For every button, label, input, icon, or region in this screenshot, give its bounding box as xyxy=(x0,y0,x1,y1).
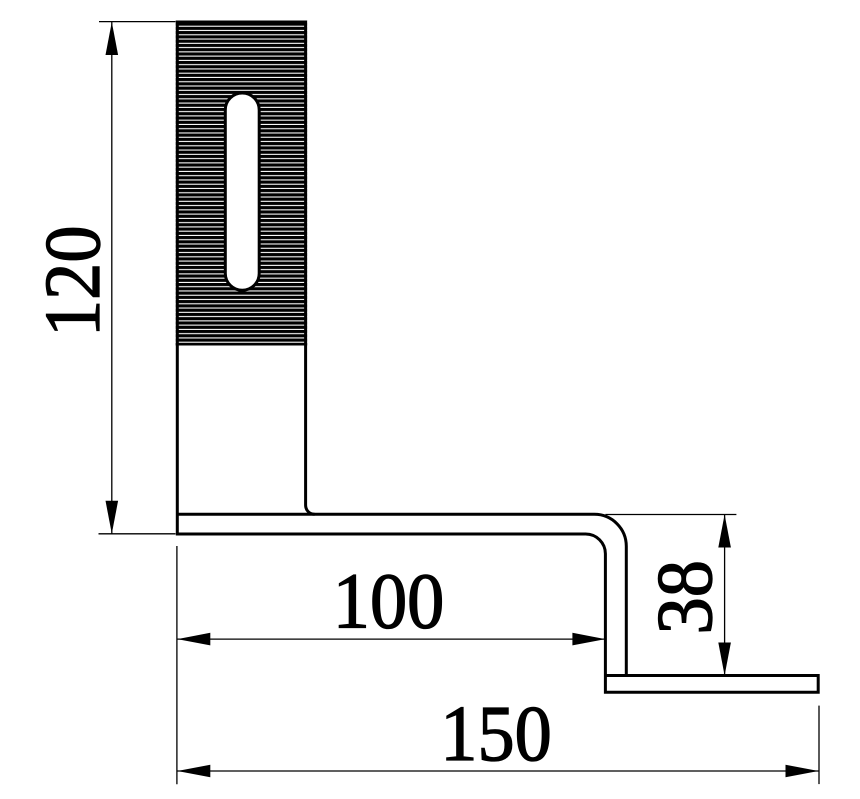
svg-text:38: 38 xyxy=(642,560,729,635)
svg-text:150: 150 xyxy=(440,691,552,778)
svg-text:120: 120 xyxy=(30,226,117,338)
svg-text:100: 100 xyxy=(333,558,445,645)
